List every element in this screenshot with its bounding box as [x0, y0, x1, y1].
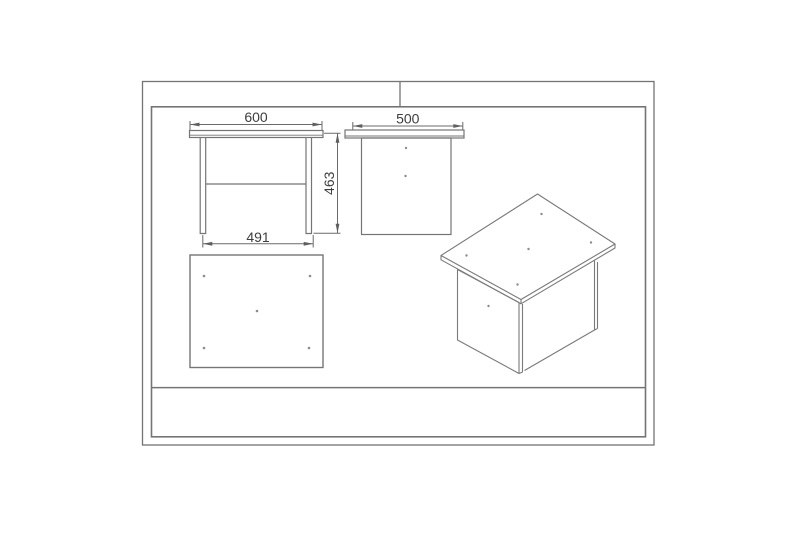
technical-drawing-page: 600 463 491 [0, 0, 800, 533]
iso-tabletop-face [441, 194, 615, 300]
side-width-label: 500 [396, 111, 420, 127]
plan-view [190, 255, 323, 368]
technical-drawing-canvas: 600 463 491 [0, 0, 800, 533]
side-view-fitting-dots [404, 147, 407, 177]
isometric-view [441, 194, 615, 374]
front-view-geometry [190, 131, 324, 234]
front-inner-width-label: 491 [246, 229, 270, 245]
front-left-leg [200, 138, 206, 234]
front-width-label: 600 [244, 109, 268, 125]
front-tabletop [190, 131, 324, 138]
plan-fitting-dots [203, 275, 312, 350]
side-panel [362, 138, 452, 235]
front-view: 600 463 491 [190, 109, 341, 248]
side-tabletop [345, 130, 464, 138]
side-view-geometry [345, 130, 464, 235]
side-view: 500 [345, 111, 464, 235]
front-right-leg [306, 138, 312, 234]
front-height-label: 463 [321, 171, 337, 195]
